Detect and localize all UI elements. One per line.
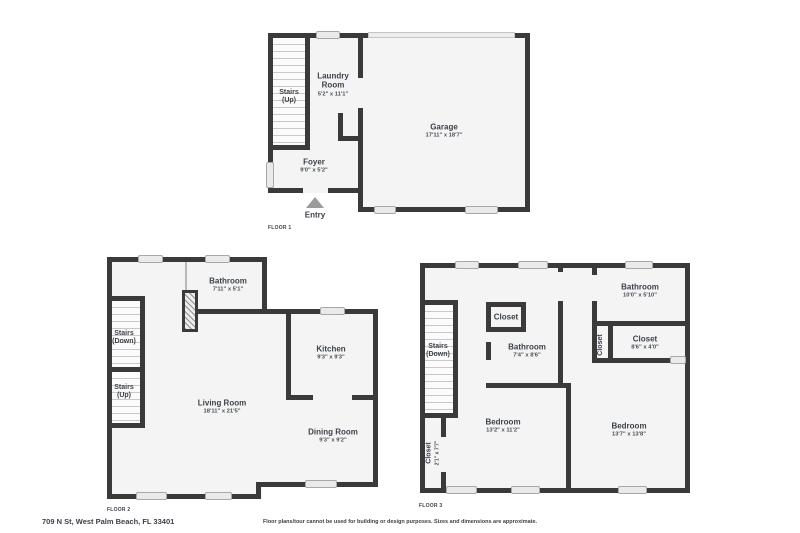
wall-segment — [521, 302, 526, 332]
room-name: Bathroom — [209, 276, 247, 285]
room-name: Closet — [631, 334, 659, 343]
room-dimensions: 8'6" x 4'0" — [631, 345, 659, 352]
room-label-bathroom-mid: Bathroom 7'4" x 8'6" — [508, 342, 546, 359]
wall-segment — [358, 33, 363, 78]
wall-segment — [338, 136, 363, 141]
wall-segment — [352, 395, 378, 400]
wall-segment — [566, 383, 571, 493]
wall-segment — [441, 413, 446, 437]
wall-segment — [486, 302, 526, 307]
garage-door — [368, 32, 515, 38]
window — [618, 486, 647, 494]
room-label-foyer: Foyer 9'0" x 5'2" — [300, 157, 328, 174]
chimney — [182, 290, 198, 332]
wall-segment — [608, 358, 672, 363]
room-name: Closet — [597, 334, 605, 355]
room-label-stairs-down: Stairs (Down) — [426, 343, 450, 360]
room-label-kitchen: Kitchen 9'3" x 9'3" — [316, 344, 345, 361]
wall-segment — [107, 257, 267, 262]
room-label-bedroom-left: Bedroom 13'2" x 11'2" — [485, 417, 520, 434]
window — [205, 255, 230, 263]
room-name: Bathroom — [621, 282, 659, 291]
room-dimensions: 7'11" x 5'1" — [209, 287, 247, 294]
entry-arrow-icon — [306, 197, 324, 208]
window — [518, 261, 548, 269]
wall-segment — [420, 413, 458, 418]
room-name: Stairs — [114, 384, 133, 392]
room-name: Stairs — [426, 343, 450, 351]
window — [670, 356, 686, 364]
room-name: Closet — [494, 312, 518, 321]
room-direction: (Down) — [426, 351, 450, 359]
room-label-bedroom-right: Bedroom 13'7" x 13'8" — [611, 421, 646, 438]
room-label-living-room: Living Room 18'11" x 21'5" — [198, 398, 246, 415]
room-dimensions: 17'11" x 18'7" — [426, 133, 463, 140]
room-dimensions: 18'11" x 21'5" — [198, 409, 246, 416]
room-name: Garage — [426, 122, 463, 131]
room-name: Bedroom — [485, 417, 520, 426]
window — [316, 31, 340, 39]
wall-segment — [286, 309, 291, 400]
room-label-closet-bottom-left: Closet 2'1" x 7'7" — [425, 441, 440, 466]
wall-segment — [525, 33, 530, 212]
wall-segment — [592, 263, 597, 275]
room-label-dining-room: Dining Room 9'3" x 9'2" — [308, 427, 358, 444]
room-label-garage: Garage 17'11" x 18'7" — [426, 122, 463, 139]
room-dimensions: 13'7" x 13'8" — [611, 432, 646, 439]
room-label-bathroom-top: Bathroom 10'0" x 5'10" — [621, 282, 659, 299]
room-direction: (Up) — [114, 392, 133, 400]
room-name: Bedroom — [611, 421, 646, 430]
floor-plan-image: Stairs (Up) Laundry Room 5'2" x 11'1" Ga… — [0, 0, 800, 533]
window — [138, 255, 163, 263]
room-name: Stairs — [279, 89, 298, 97]
window — [465, 206, 498, 214]
room-dimensions: 9'3" x 9'3" — [316, 355, 345, 362]
window — [511, 486, 540, 494]
room-dimensions: 9'0" x 5'2" — [300, 168, 328, 175]
room-direction: (Up) — [279, 97, 298, 105]
floor1-caption: FLOOR 1 — [268, 225, 291, 231]
room-name: Living Room — [198, 398, 246, 407]
window — [305, 480, 337, 488]
floor3-caption: FLOOR 3 — [419, 503, 442, 509]
window — [455, 261, 479, 269]
room-label-bathroom: Bathroom 7'11" x 5'1" — [209, 276, 247, 293]
room-dimensions: 5'2" x 11'1" — [308, 92, 358, 99]
room-name: Laundry Room — [308, 72, 358, 91]
room-dimensions: 7'4" x 8'6" — [508, 353, 546, 360]
room-label-stairs-down: Stairs (Down) — [112, 330, 136, 347]
disclaimer-text: Floor plans/tour cannot be used for buil… — [0, 519, 800, 525]
wall-segment — [558, 263, 563, 272]
door-line — [185, 262, 187, 292]
room-dimensions: 9'3" x 9'2" — [308, 438, 358, 445]
floor2-caption: FLOOR 2 — [107, 507, 130, 513]
window — [205, 492, 232, 500]
room-name: Bathroom — [508, 342, 546, 351]
wall-segment — [268, 145, 310, 150]
window — [374, 206, 396, 214]
wall-segment — [286, 395, 313, 400]
room-label-stairs-up: Stairs (Up) — [114, 384, 133, 401]
window — [136, 492, 167, 500]
room-name: Kitchen — [316, 344, 345, 353]
wall-segment — [486, 342, 491, 360]
entry-text: Entry — [305, 210, 325, 219]
entry-label: Entry — [305, 210, 325, 219]
room-dimensions: 2'1" x 7'7" — [435, 441, 441, 466]
wall-segment — [107, 494, 261, 499]
room-label-closet-hall: Closet — [494, 312, 518, 321]
room-label-stairs-up: Stairs (Up) — [279, 89, 298, 106]
room-dimensions: 10'0" x 5'10" — [621, 293, 659, 300]
window — [266, 162, 274, 188]
wall-segment — [140, 296, 145, 428]
room-name: Dining Room — [308, 427, 358, 436]
wall-segment — [262, 257, 267, 314]
room-dimensions: 13'2" x 11'2" — [485, 428, 520, 435]
wall-segment — [685, 263, 690, 493]
room-label-closet-right: Closet 8'6" x 4'0" — [631, 334, 659, 351]
wall-segment — [358, 108, 363, 212]
wall-segment — [558, 301, 563, 388]
wall-segment — [107, 423, 145, 428]
wall-segment — [268, 188, 303, 193]
room-name: Stairs — [112, 330, 136, 338]
window — [446, 486, 477, 494]
room-name: Foyer — [300, 157, 328, 166]
room-direction: (Down) — [112, 338, 136, 346]
wall-segment — [592, 321, 690, 326]
wall-segment — [453, 300, 458, 418]
room-label-laundry: Laundry Room 5'2" x 11'1" — [308, 72, 358, 99]
room-name: Closet — [425, 441, 433, 466]
window — [625, 261, 653, 269]
window — [320, 307, 345, 315]
room-label-closet-mid: Closet — [597, 334, 605, 355]
